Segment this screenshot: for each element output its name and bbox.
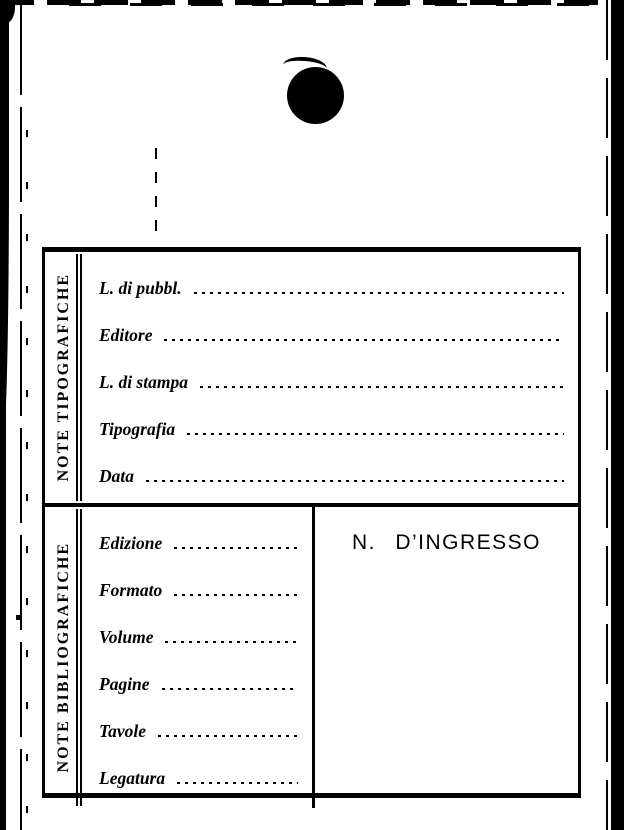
- field-label: Editore: [99, 312, 152, 359]
- field-row-formato: Formato: [99, 567, 302, 614]
- scan-edge-left-band-upper: [0, 0, 9, 430]
- field-blank-line: [165, 641, 298, 643]
- field-blank-line: [174, 547, 298, 549]
- field-label: Tavole: [99, 708, 146, 755]
- scan-edge-left-line: [20, 0, 22, 830]
- scanned-library-card: { "colors": { "ink": "#000000", "paper":…: [0, 0, 624, 830]
- field-label: Tipografia: [99, 406, 175, 453]
- scan-edge-right-band: [611, 0, 624, 830]
- field-blank-line: [158, 735, 298, 737]
- field-label: Legatura: [99, 755, 165, 802]
- field-row-l-di-stampa: L. di stampa: [99, 359, 568, 406]
- field-blank-line: [187, 433, 564, 435]
- section-note-bibliografiche: NOTE BIBLIOGRAFICHE Edizione Formato Vol…: [45, 507, 578, 808]
- ingresso-cell: N. D’INGRESSO: [312, 507, 578, 808]
- ingresso-title: N. D’INGRESSO: [315, 531, 578, 555]
- field-label: Formato: [99, 567, 162, 614]
- scan-edge-top-jag: [40, 3, 600, 6]
- bibliographic-fields: Edizione Formato Volume Pagine Tavole Le…: [82, 507, 312, 808]
- field-label: Data: [99, 453, 134, 500]
- scan-edge-right-line: [606, 0, 608, 830]
- field-row-tipografia: Tipografia: [99, 406, 568, 453]
- field-blank-line: [177, 782, 298, 784]
- scan-speck: [16, 615, 20, 620]
- field-blank-line: [164, 339, 564, 341]
- field-blank-line: [200, 386, 564, 388]
- field-row-data: Data: [99, 453, 568, 500]
- field-row-pagine: Pagine: [99, 661, 302, 708]
- scan-edge-left-dashes: [26, 130, 28, 820]
- fold-crease-line: [155, 148, 157, 232]
- field-blank-line: [162, 688, 298, 690]
- side-label-column: NOTE BIBLIOGRAFICHE: [45, 507, 82, 808]
- field-label: L. di stampa: [99, 359, 188, 406]
- field-row-legatura: Legatura: [99, 755, 302, 802]
- side-label-column: NOTE TIPOGRAFICHE: [45, 252, 82, 503]
- catalog-card-table: NOTE TIPOGRAFICHE L. di pubbl. Editore L…: [42, 247, 581, 798]
- field-row-edizione: Edizione: [99, 520, 302, 567]
- field-row-tavole: Tavole: [99, 708, 302, 755]
- section-side-label: NOTE TIPOGRAFICHE: [55, 273, 73, 481]
- field-label: Volume: [99, 614, 153, 661]
- field-row-editore: Editore: [99, 312, 568, 359]
- field-row-l-di-pubbl: L. di pubbl.: [99, 265, 568, 312]
- section-side-label: NOTE BIBLIOGRAFICHE: [55, 542, 73, 772]
- typographic-fields: L. di pubbl. Editore L. di stampa Tipogr…: [82, 252, 578, 503]
- field-blank-line: [146, 480, 564, 482]
- field-label: Edizione: [99, 520, 162, 567]
- field-label: L. di pubbl.: [99, 265, 182, 312]
- field-blank-line: [194, 292, 564, 294]
- section-note-tipografiche: NOTE TIPOGRAFICHE L. di pubbl. Editore L…: [45, 252, 578, 507]
- field-blank-line: [174, 594, 298, 596]
- field-row-volume: Volume: [99, 614, 302, 661]
- field-label: Pagine: [99, 661, 150, 708]
